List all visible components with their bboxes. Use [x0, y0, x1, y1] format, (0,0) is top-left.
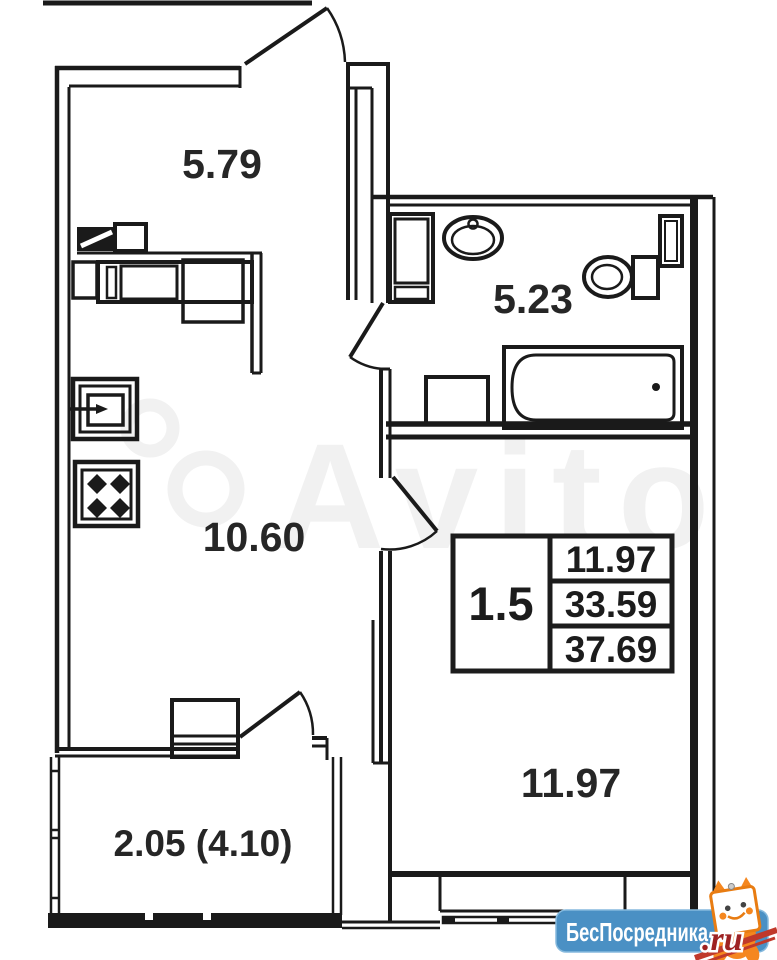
bathroom-door-leaf	[350, 303, 383, 357]
entry-door	[245, 8, 345, 64]
washbasin	[444, 217, 502, 259]
toilet	[584, 257, 658, 298]
logo-domain: .ru	[702, 921, 743, 958]
kitchen-counter	[73, 224, 262, 373]
entry-door-swing	[327, 8, 345, 62]
balcony-door-swing	[300, 692, 313, 735]
toilet-tank	[633, 257, 658, 298]
logo-site-name: БесПосредника	[566, 917, 708, 947]
counter-detail	[121, 266, 177, 299]
window-mullion	[497, 916, 509, 924]
bathroom-door-swing	[350, 357, 384, 369]
counter-unit	[73, 262, 97, 298]
entry-door-leaf	[245, 8, 327, 64]
kitchen-cabinet-icon	[115, 224, 146, 251]
bathroom-door	[350, 303, 384, 369]
floorplan-image: Avito	[0, 0, 777, 960]
table-rooms-count: 1.5	[468, 577, 533, 630]
balcony-door-leaf	[240, 692, 300, 737]
room-label-bathroom: 5.23	[493, 276, 573, 322]
counter-unit	[183, 260, 243, 322]
bathtub-drain	[652, 383, 660, 391]
balcony-parapet	[48, 913, 342, 928]
area-table: 1.5 11.97 33.59 37.69	[453, 536, 672, 671]
sink-tap-arrow	[96, 404, 108, 414]
table-living-area: 11.97	[566, 539, 657, 580]
room-label-bedroom: 11.97	[521, 760, 621, 806]
vent-duct	[660, 216, 682, 266]
balcony-door	[240, 692, 313, 737]
watermark-circle	[127, 405, 173, 451]
table-total-area: 33.59	[565, 584, 658, 625]
watermark-circle	[175, 458, 237, 520]
room-label-balcony: 2.05 (4.10)	[114, 823, 293, 864]
window-mullion	[443, 916, 455, 924]
room-label-hall: 5.79	[182, 141, 262, 187]
room-label-kitchen-living: 10.60	[203, 514, 306, 560]
table-total-with-balcony: 37.69	[565, 629, 658, 670]
site-logo: БесПосредника .ru	[556, 875, 777, 960]
washing-machine	[390, 214, 433, 302]
floorplan-svg: Avito	[0, 0, 777, 960]
parapet-joint	[145, 913, 153, 920]
parapet-joint	[203, 913, 211, 920]
kitchen-stove	[75, 462, 138, 526]
counter-detail	[107, 267, 116, 298]
